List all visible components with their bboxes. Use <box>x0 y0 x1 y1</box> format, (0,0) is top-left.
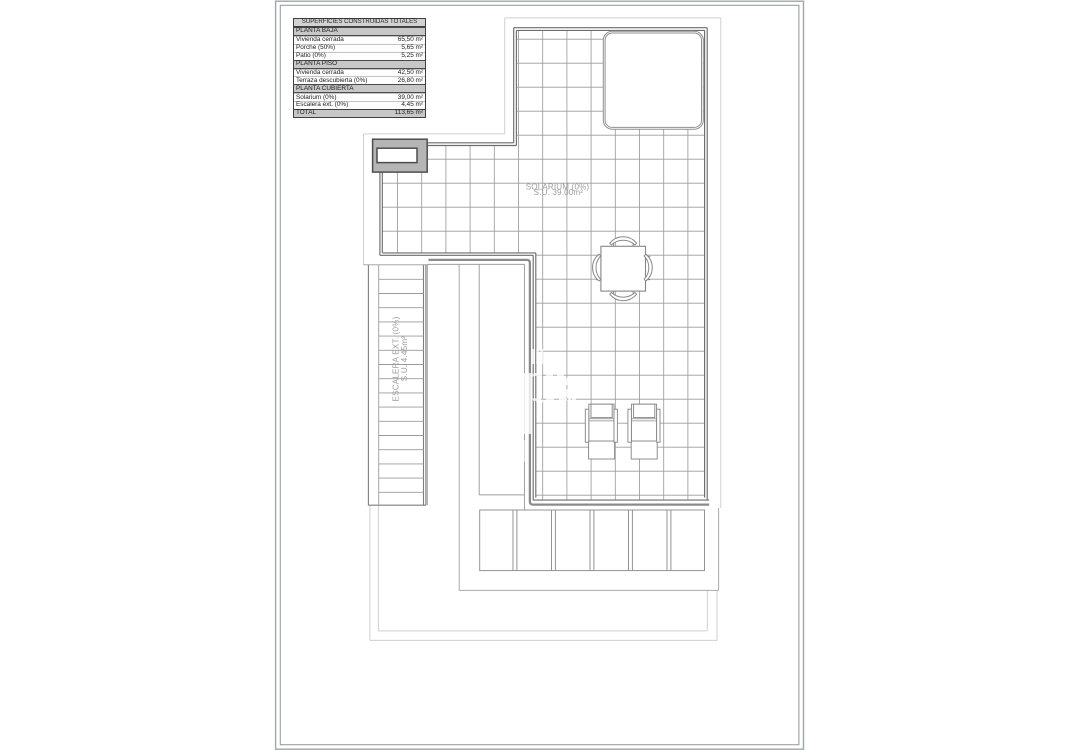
svg-text:S.U. 4.45m²: S.U. 4.45m² <box>400 336 409 381</box>
svg-text:S.U. 39.00m²: S.U. 39.00m² <box>534 188 584 197</box>
